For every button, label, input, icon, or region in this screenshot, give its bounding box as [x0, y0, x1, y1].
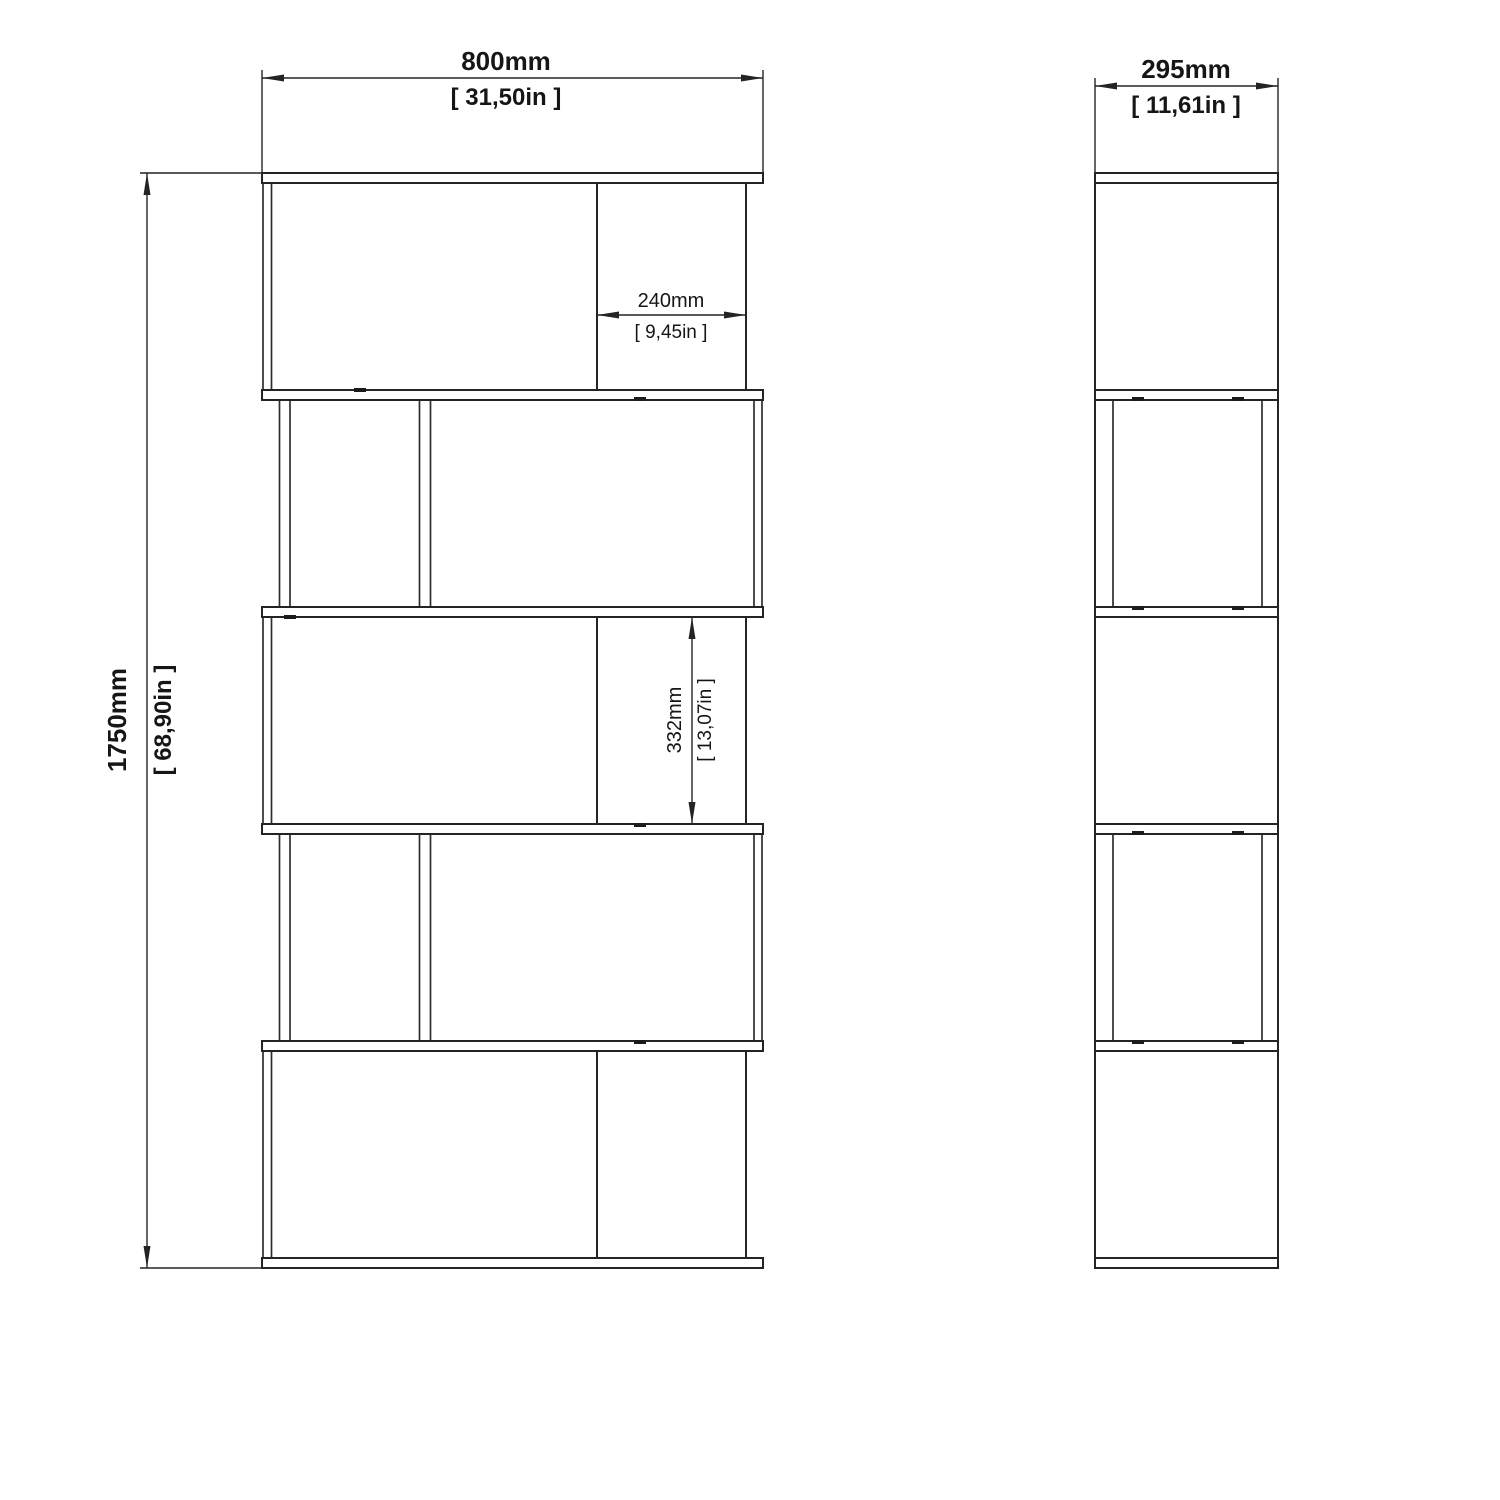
dim-width-in: [ 31,50in ]: [451, 84, 562, 111]
fitting-mark: [1232, 397, 1244, 401]
side-shelf-3: [1095, 824, 1278, 834]
dim-overall-width: 800mm [ 31,50in ]: [262, 46, 763, 172]
side-inner-panels: [1113, 400, 1262, 1041]
dim-width-mm: 800mm: [461, 46, 551, 76]
fitting-mark: [1132, 831, 1144, 835]
side-shelf-4: [1095, 1041, 1278, 1051]
fitting-marks-front: [284, 388, 646, 1044]
front-shelf-1: [262, 390, 763, 400]
fitting-marks-side: [1132, 397, 1244, 1044]
fitting-mark: [1132, 606, 1144, 610]
front-bottom-board: [262, 1258, 763, 1268]
dim-compartment-width-in: [ 9,45in ]: [635, 322, 708, 343]
dim-depth: 295mm [ 11,61in ]: [1095, 54, 1278, 172]
fitting-mark: [1132, 397, 1144, 401]
fitting-mark: [1132, 1040, 1144, 1044]
side-shelf-2: [1095, 607, 1278, 617]
dim-overall-height: 1750mm [ 68,90in ]: [102, 173, 262, 1268]
dim-compartment-height: 332mm [ 13,07in ]: [664, 617, 716, 824]
technical-drawing: 800mm [ 31,50in ] 295mm [ 11,61in ] 1750…: [0, 0, 1500, 1500]
front-tier5-walls: [263, 1051, 746, 1258]
side-boards: [1095, 173, 1278, 1268]
side-outline: [1095, 173, 1278, 1268]
fitting-mark: [284, 615, 296, 619]
dim-height-mm: 1750mm: [102, 668, 132, 772]
front-shelf-2: [262, 607, 763, 617]
dim-compartment-height-mm: 332mm: [664, 687, 686, 754]
dim-compartment-width: 240mm [ 9,45in ]: [597, 290, 746, 343]
fitting-mark: [1232, 606, 1244, 610]
side-view: [1095, 173, 1278, 1268]
side-shelf-1: [1095, 390, 1278, 400]
dim-compartment-width-mm: 240mm: [638, 290, 705, 312]
fitting-mark: [634, 397, 646, 401]
front-top-board: [262, 173, 763, 183]
fitting-mark: [1232, 1040, 1244, 1044]
fitting-mark: [634, 1040, 646, 1044]
dim-depth-in: [ 11,61in ]: [1131, 92, 1240, 119]
dim-depth-mm: 295mm: [1141, 54, 1231, 84]
fitting-mark: [354, 388, 366, 392]
dim-compartment-height-in: [ 13,07in ]: [695, 678, 716, 761]
fitting-mark: [634, 823, 646, 827]
front-tier2-walls: [280, 400, 763, 607]
front-tier1-walls: [263, 183, 746, 390]
front-shelf-4: [262, 1041, 763, 1051]
front-shelf-3: [262, 824, 763, 834]
drawing-canvas: 800mm [ 31,50in ] 295mm [ 11,61in ] 1750…: [0, 0, 1500, 1500]
side-top-board: [1095, 173, 1278, 183]
dim-height-in: [ 68,90in ]: [150, 665, 177, 776]
fitting-mark: [1232, 831, 1244, 835]
side-bottom-board: [1095, 1258, 1278, 1268]
front-tier4-walls: [280, 834, 763, 1041]
